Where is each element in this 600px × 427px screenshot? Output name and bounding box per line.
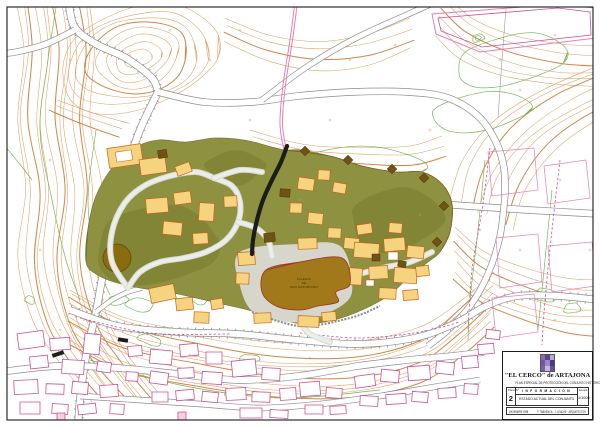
scale-value: 1/1000 <box>578 396 588 400</box>
architect-credit: F. TABUENCA · J. LEACHE · ARQUITECTOS <box>537 410 586 414</box>
title-block-footer: DICIEMBRE 1998 F. TABUENCA · J. LEACHE ·… <box>506 407 589 415</box>
scale-cell: Escala 1/1000 <box>578 388 588 405</box>
scale-label: Escala <box>579 388 587 392</box>
municipal-crest-logo <box>541 355 554 371</box>
drawing-sheet: IGLESIA DE SAN SATURNINO "EL CERCO" de A… <box>0 0 600 427</box>
title-block: "EL CERCO" de ARTAJONA PLAN ESPECIAL DE … <box>502 351 593 420</box>
plan-title: "EL CERCO" de ARTAJONA <box>503 372 592 379</box>
title-block-table: Plano Nº 2 I N F O R M A C I Ó N ESTADO … <box>506 387 589 406</box>
church-label-line3: SAN SATURNINO <box>290 285 319 289</box>
drawing-date: DICIEMBRE 1998 <box>509 410 528 414</box>
sheet-number-cell: Plano Nº 2 <box>507 388 516 405</box>
sheet-number-value: 2 <box>507 394 515 403</box>
section-header: I N F O R M A C I Ó N <box>516 388 577 395</box>
sheet-title-cell: I N F O R M A C I Ó N ESTADO ACTUAL DEL … <box>516 388 578 405</box>
sheet-name: ESTADO ACTUAL DEL CONJUNTO <box>519 397 574 401</box>
plan-subtitle: PLAN ESPECIAL DE PROTECCIÓN DEL CONJUNTO… <box>515 380 579 385</box>
